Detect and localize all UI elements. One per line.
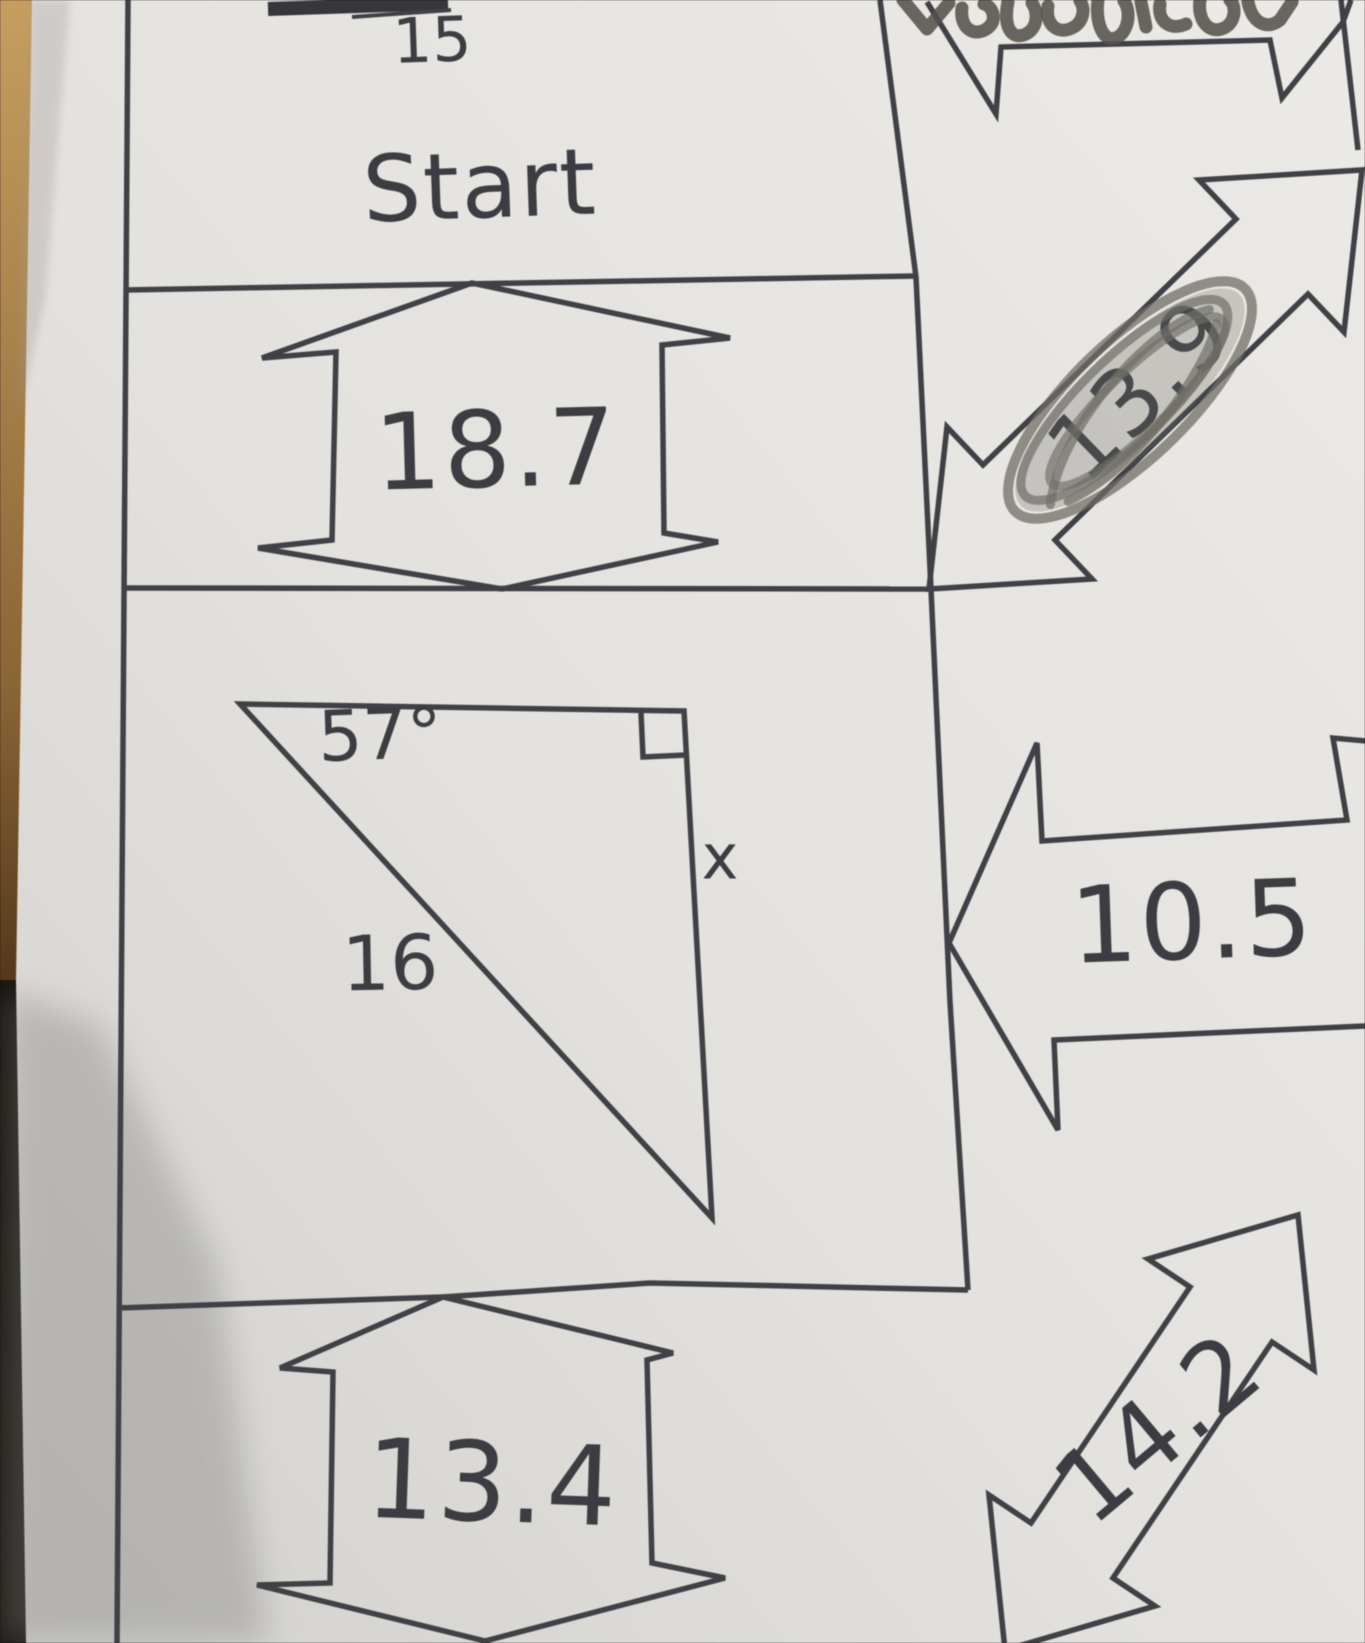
top-arrow-value: 15 (391, 2, 472, 78)
triangle-box-top-border (122, 588, 931, 589)
angle-label: 57° (317, 692, 444, 778)
start-label: Start (361, 128, 599, 243)
start-box: Start (361, 128, 599, 243)
worksheet-canvas: 15 Start 18.7 13.9 (0, 0, 1365, 1643)
hypotenuse-label: 16 (341, 918, 439, 1009)
unknown-side-label: x (702, 821, 739, 894)
worksheet-photo: 15 Start 18.7 13.9 (0, 0, 1365, 1643)
answer-value: 18.7 (372, 385, 619, 514)
answer-value: 10.5 (1068, 856, 1316, 987)
answer-value: 13.4 (363, 1415, 620, 1552)
